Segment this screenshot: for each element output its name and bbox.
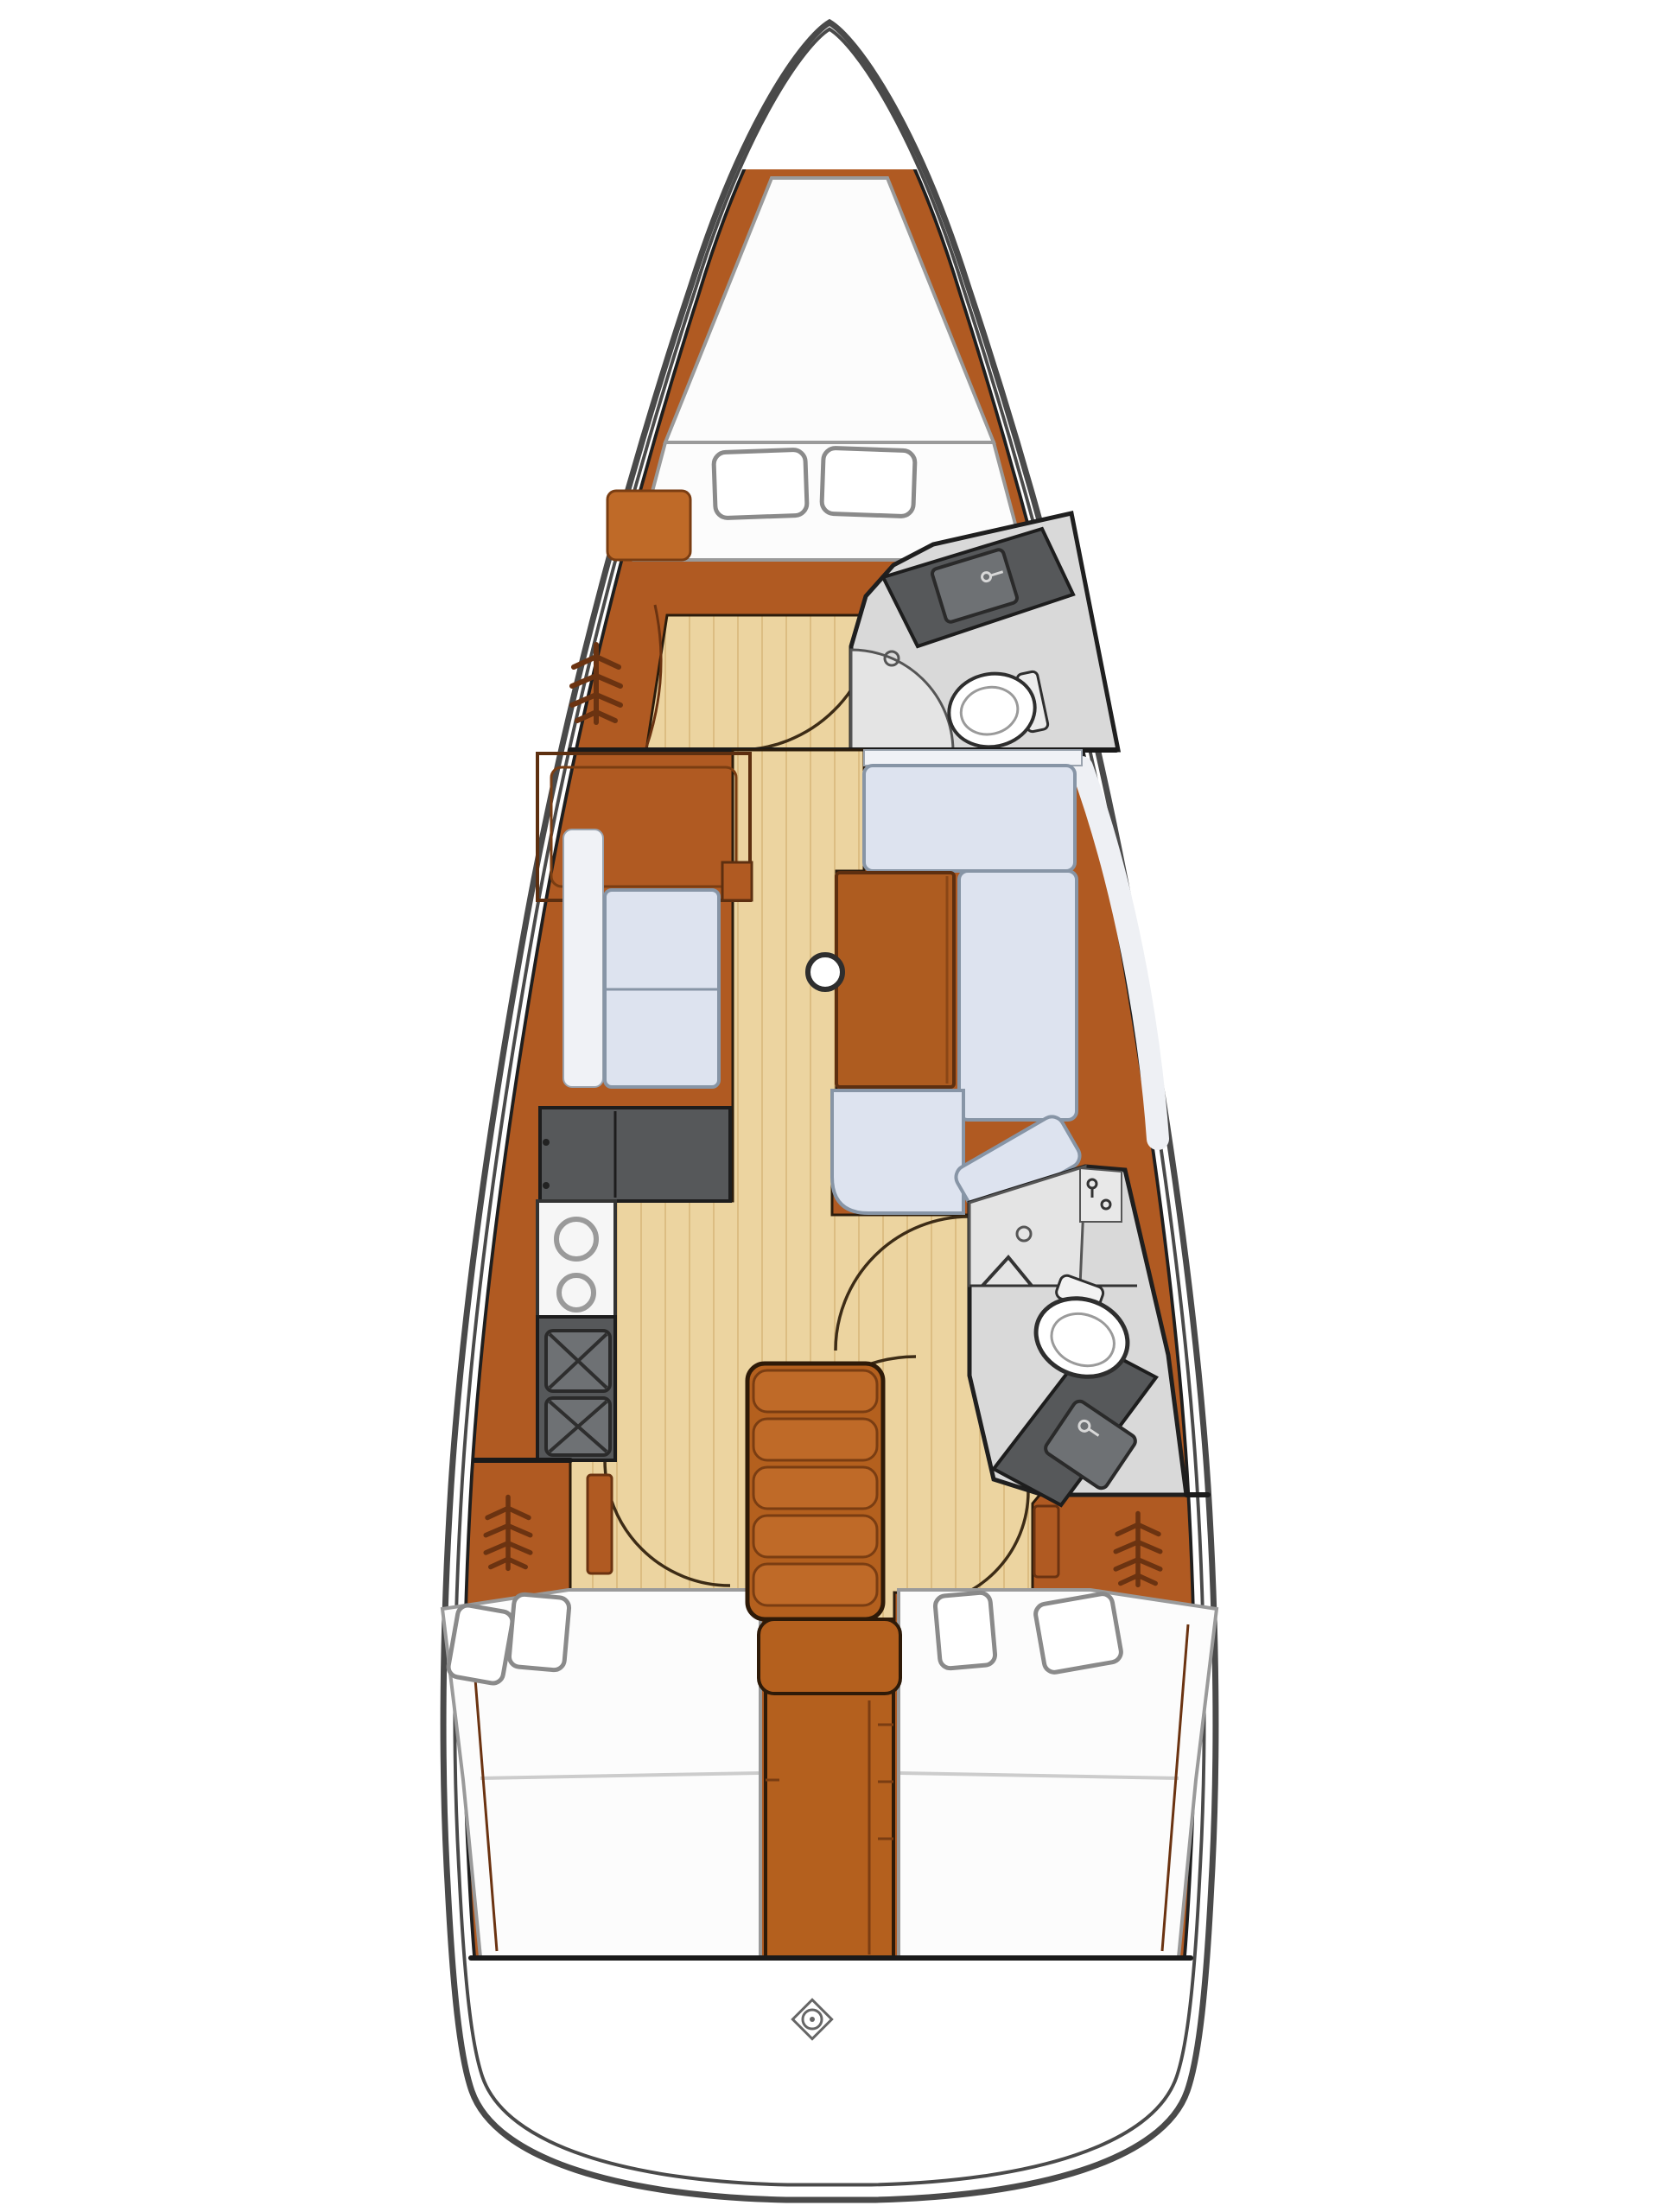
port-settee-backrest <box>563 829 603 1087</box>
sink-icon <box>546 1331 610 1391</box>
step <box>753 1467 877 1509</box>
galley-counter <box>540 1108 730 1201</box>
aft-head-shelf <box>1080 1168 1122 1222</box>
sink-icon <box>546 1398 610 1455</box>
forward-cabin-seat <box>607 491 690 560</box>
mast-icon <box>808 955 842 989</box>
aft-cabinet <box>588 1475 612 1573</box>
port-aft-cabin-bed <box>442 1588 760 1957</box>
step <box>753 1564 877 1605</box>
engine-trunk <box>759 1619 900 1958</box>
pillow <box>714 449 808 518</box>
dinette-backrest <box>864 750 1082 766</box>
pillow <box>447 1604 514 1685</box>
salon-table <box>836 873 954 1087</box>
aft-cabinet <box>1034 1506 1058 1577</box>
dinette-seat <box>959 871 1077 1120</box>
dinette-seat <box>864 766 1075 871</box>
pillow <box>508 1593 569 1670</box>
pillow <box>822 448 916 517</box>
starboard-aft-cabin-bed <box>899 1590 1217 1957</box>
companionway-steps <box>747 1363 883 1619</box>
sailboat-floor-plan <box>0 0 1659 2212</box>
pillow <box>1034 1592 1123 1674</box>
step <box>753 1419 877 1460</box>
forward-cabin-floor <box>646 615 874 750</box>
step <box>753 1370 877 1412</box>
port-settee <box>605 890 719 1087</box>
step <box>753 1516 877 1557</box>
pillow <box>934 1592 995 1669</box>
dinette-seat <box>832 1090 963 1213</box>
